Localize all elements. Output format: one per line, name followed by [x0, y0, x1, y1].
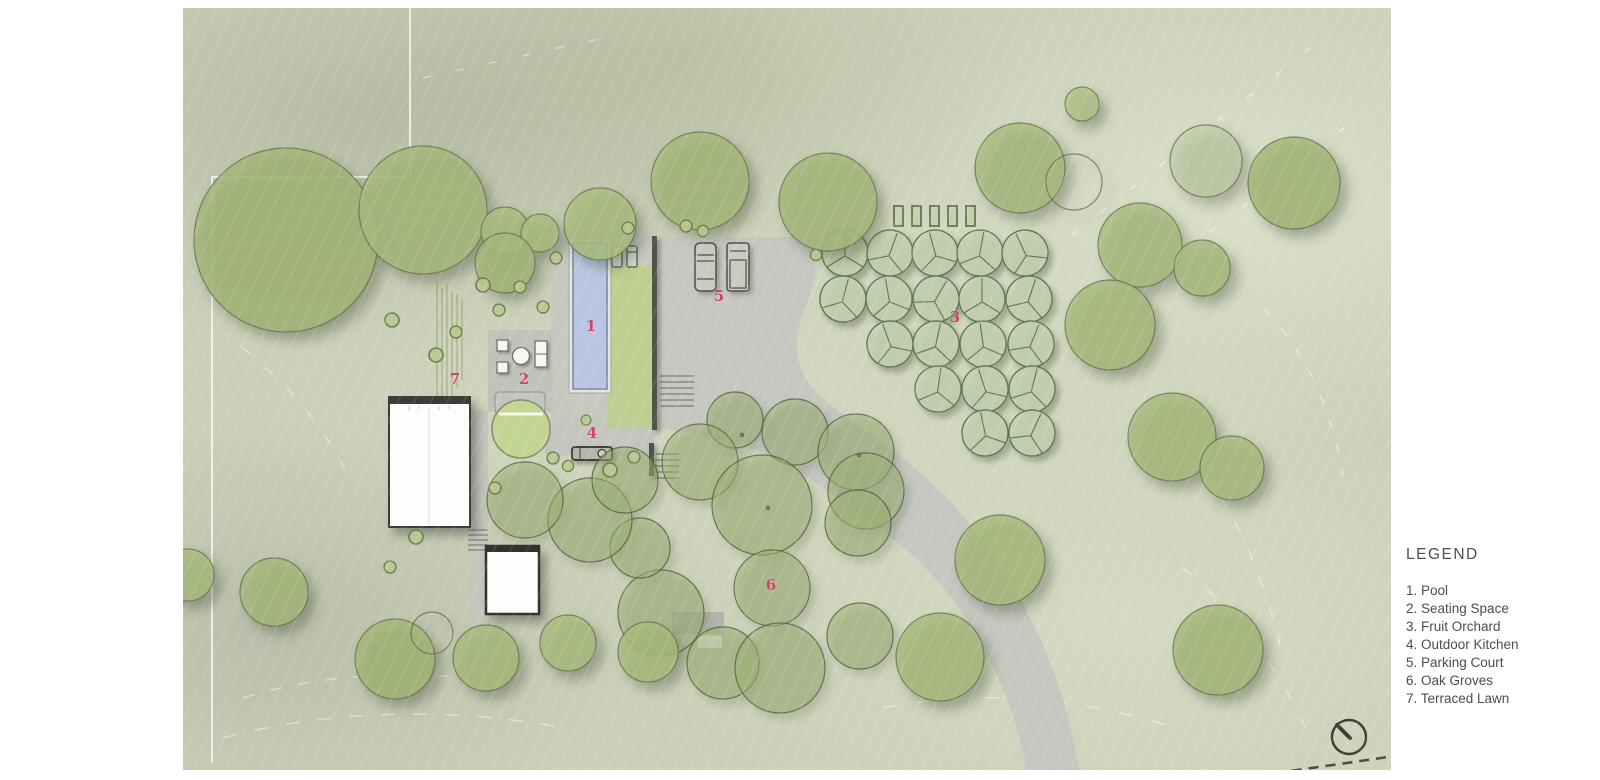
legend: LEGEND 1. Pool 2. Seating Space 3. Fruit…	[1406, 546, 1576, 708]
legend-item-seating-space: 2. Seating Space	[1406, 600, 1576, 618]
pool-lawn	[607, 266, 651, 428]
house-walkway	[469, 410, 488, 532]
legend-item-pool: 1. Pool	[1406, 582, 1576, 600]
pool-water	[573, 243, 607, 389]
legend-item-fruit-orchard: 3. Fruit Orchard	[1406, 618, 1576, 636]
road-edge-dashes	[1225, 757, 1388, 770]
plan-sheet	[183, 8, 1391, 770]
car	[695, 243, 716, 291]
legend-title: LEGEND	[1406, 546, 1576, 564]
legend-item-oak-groves: 6. Oak Groves	[1406, 672, 1576, 690]
garden-beds	[894, 206, 975, 226]
legend-item-outdoor-kitchen: 4. Outdoor Kitchen	[1406, 636, 1576, 654]
site-plan-page: 1 2 3 4 5 6 7 LEGEND 1. Pool 2. Seating …	[0, 0, 1600, 780]
terrace-lines	[437, 280, 462, 400]
site-plan-drawing	[183, 8, 1391, 770]
main-house	[389, 397, 470, 527]
guest-building	[486, 546, 539, 614]
legend-item-terraced-lawn: 7. Terraced Lawn	[1406, 690, 1576, 708]
legend-item-parking-court: 5. Parking Court	[1406, 654, 1576, 672]
truck	[727, 243, 749, 291]
round-lawn-planter	[492, 400, 550, 458]
north-arrow-compass	[1332, 720, 1366, 754]
